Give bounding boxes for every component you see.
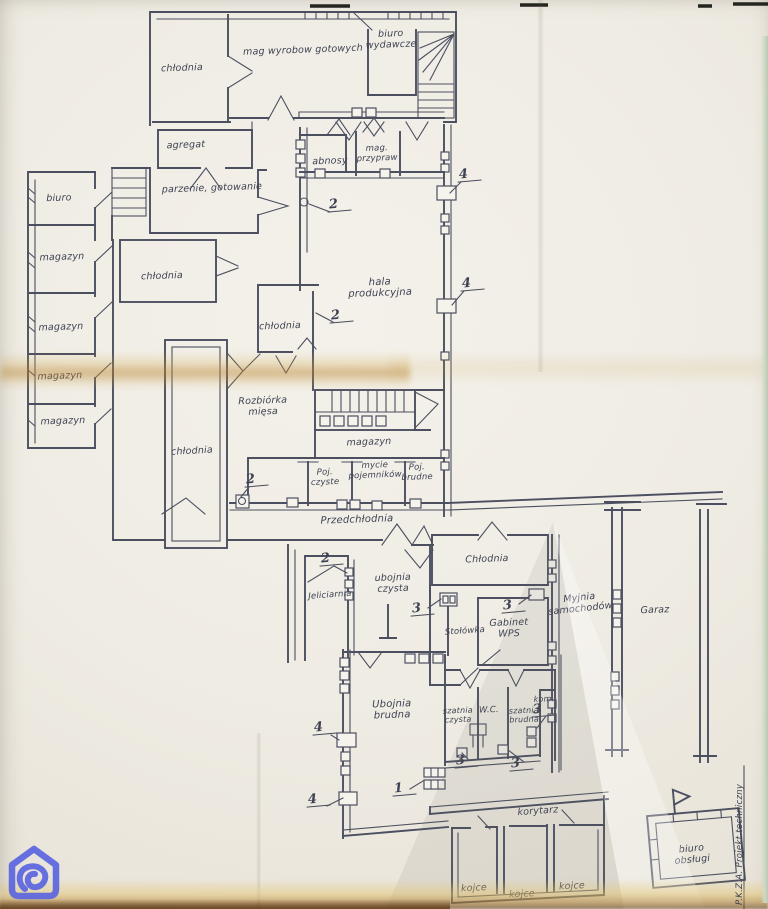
floor-plan-drawing <box>0 0 768 909</box>
title-block-text: P.K.Z.A. Projekt techniczny <box>735 763 748 905</box>
otodom-logo-icon <box>6 844 62 902</box>
photographed-floor-plan: chłodniamag wyrobow gotowychbiuro wydawc… <box>0 0 768 909</box>
